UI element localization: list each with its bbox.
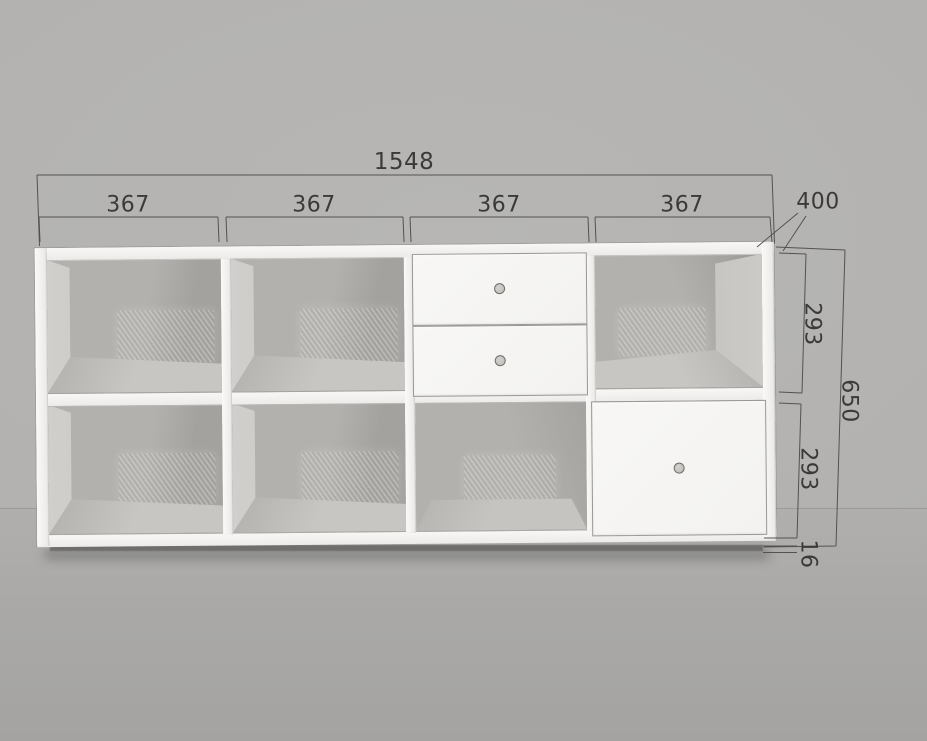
- drawer-knob[interactable]: [495, 355, 506, 366]
- cell-highlight: [463, 455, 556, 500]
- dim-line-section-3: [410, 217, 589, 242]
- dim-lower-height-label: 293: [796, 447, 821, 491]
- left-side-panel: [35, 248, 50, 546]
- drawer-knob[interactable]: [494, 283, 505, 294]
- cell-highlight: [302, 451, 399, 503]
- dim-upper-height-label: 293: [800, 302, 825, 346]
- dim-line-overall-height: [764, 247, 845, 547]
- dim-section-width-label-4: 367: [660, 193, 704, 218]
- cell-r1c4-open[interactable]: [595, 254, 763, 388]
- cell-highlight: [619, 308, 706, 357]
- dim-section-width-label-3: 367: [477, 193, 521, 218]
- cell-highlight: [117, 309, 215, 363]
- door-front[interactable]: [591, 400, 767, 537]
- drawer-stack: [412, 252, 588, 397]
- drawer-front-2[interactable]: [412, 324, 588, 397]
- dim-panel-thickness-label: 16: [796, 540, 821, 569]
- cell-r2c2-open[interactable]: [232, 402, 406, 533]
- cell-r1c1-open[interactable]: [47, 259, 222, 394]
- dim-section-width-label-1: 367: [106, 193, 150, 218]
- door-knob[interactable]: [674, 463, 685, 474]
- dim-overall-width-label: 1548: [374, 149, 435, 175]
- drawer-front-1[interactable]: [412, 252, 588, 325]
- cell-r2c3-open[interactable]: [415, 400, 587, 530]
- cell-r2c1-open[interactable]: [48, 404, 223, 535]
- cell-highlight: [118, 453, 216, 505]
- render-viewport: 1548 367 367 367 367 400 293 650 293 16: [0, 0, 927, 741]
- cabinet[interactable]: [35, 242, 777, 546]
- cell-r1c2-open[interactable]: [231, 257, 405, 392]
- dim-line-section-2: [226, 217, 404, 242]
- cell-highlight: [300, 308, 397, 362]
- dim-line-section-4: [595, 217, 772, 242]
- dim-overall-height-label: 650: [837, 379, 862, 423]
- dim-line-section-1: [39, 217, 219, 242]
- dim-depth-label: 400: [796, 190, 840, 215]
- dim-section-width-label-2: 367: [292, 193, 336, 218]
